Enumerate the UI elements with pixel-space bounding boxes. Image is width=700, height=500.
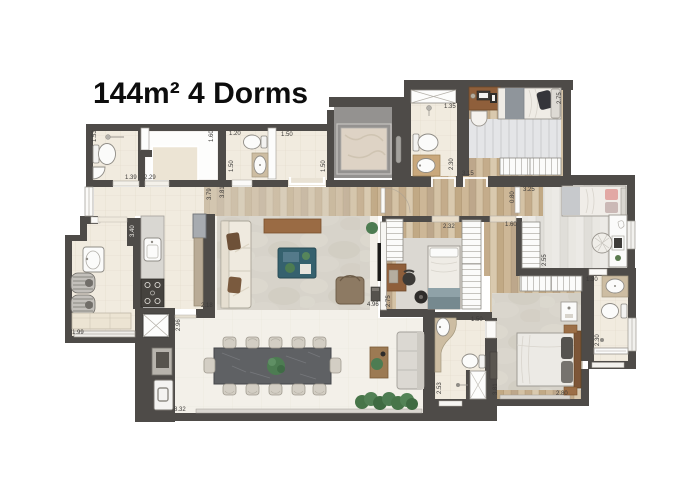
svg-text:1.50: 1.50 — [321, 160, 327, 172]
svg-text:1.50: 1.50 — [229, 160, 235, 172]
svg-text:3.81: 3.81 — [220, 186, 226, 198]
svg-text:3.25: 3.25 — [523, 187, 535, 193]
svg-text:2.53: 2.53 — [437, 382, 443, 394]
svg-text:144m² 4 Dorms: 144m² 4 Dorms — [93, 77, 308, 110]
svg-text:1.53: 1.53 — [92, 130, 98, 142]
svg-text:1.99: 1.99 — [72, 330, 84, 336]
svg-text:2.75: 2.75 — [386, 295, 392, 307]
svg-text:3.40: 3.40 — [130, 225, 136, 237]
svg-text:2.18: 2.18 — [201, 303, 213, 309]
svg-text:1.20: 1.20 — [229, 131, 241, 137]
svg-text:2.75: 2.75 — [557, 92, 563, 104]
svg-text:2.96: 2.96 — [176, 319, 182, 331]
svg-text:1.60: 1.60 — [209, 130, 215, 142]
svg-text:0.80: 0.80 — [510, 191, 516, 203]
svg-text:1.50: 1.50 — [471, 317, 483, 323]
svg-text:2.80: 2.80 — [556, 391, 568, 397]
svg-text:2.30: 2.30 — [449, 158, 455, 170]
svg-text:1.35: 1.35 — [444, 104, 456, 110]
svg-text:2.55: 2.55 — [542, 254, 548, 266]
svg-text:3.79: 3.79 — [207, 188, 213, 200]
svg-text:1.30: 1.30 — [586, 277, 598, 283]
svg-text:1.39: 1.39 — [125, 175, 137, 181]
svg-text:8.32: 8.32 — [174, 407, 186, 413]
svg-text:1.50: 1.50 — [281, 132, 293, 138]
svg-text:2.32: 2.32 — [443, 224, 455, 230]
svg-text:1.60: 1.60 — [505, 222, 517, 228]
svg-text:2.29: 2.29 — [144, 175, 156, 181]
svg-text:2.30: 2.30 — [595, 334, 601, 346]
svg-text:3.15: 3.15 — [462, 171, 474, 177]
svg-text:4.96: 4.96 — [367, 302, 379, 308]
svg-text:3.81: 3.81 — [493, 383, 499, 395]
